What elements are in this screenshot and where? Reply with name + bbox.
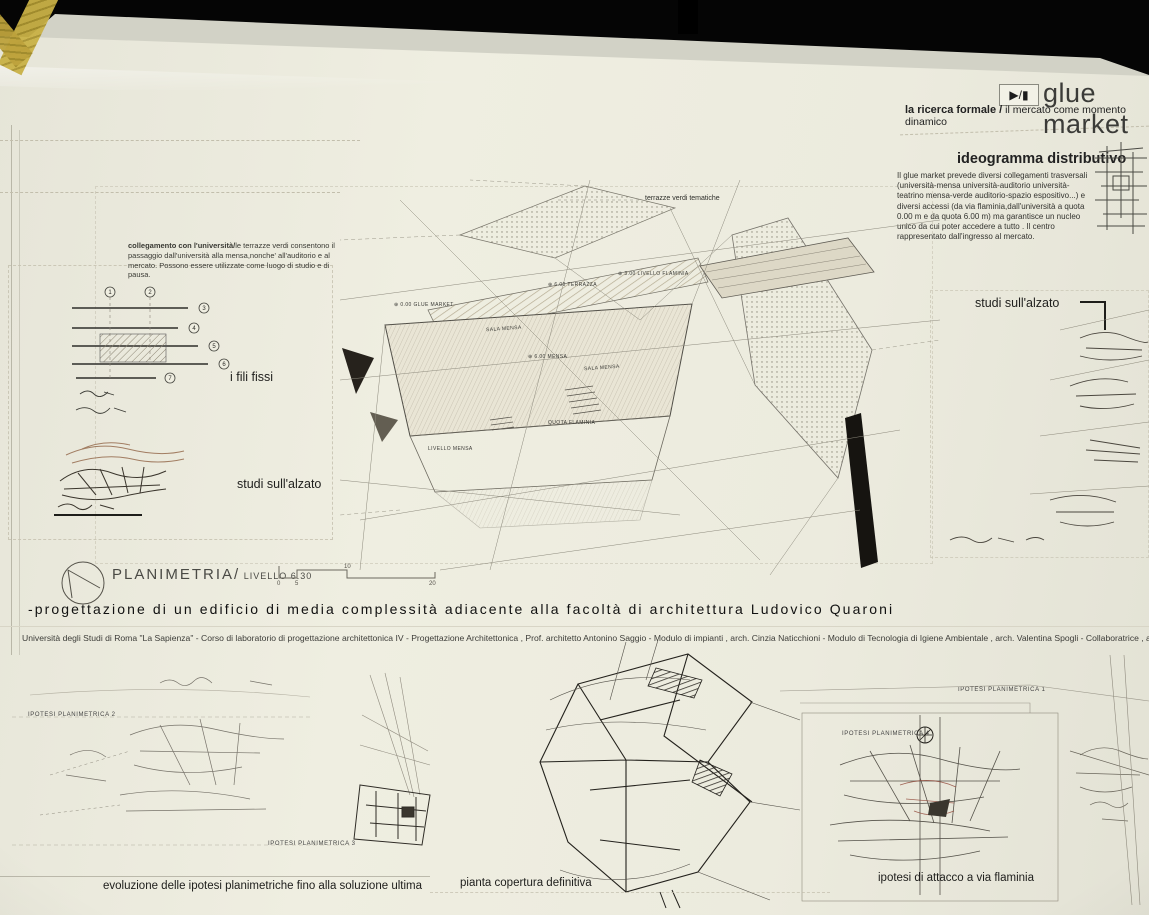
photo-backdrop: ▶/▮ glue market la ricerca formale / il …: [0, 0, 1149, 915]
planimetria-word: PLANIMETRIA/: [112, 566, 240, 583]
ipotesi-right-sketch: [780, 655, 1149, 905]
fili-fissi-label: i fili fissi: [230, 370, 273, 384]
scale-tick: 5: [295, 581, 299, 587]
caption-rule: [430, 892, 830, 893]
collegamento-note: collegamento con l'università/le terrazz…: [128, 241, 343, 280]
scale-tick: 0: [277, 581, 281, 587]
subtitle-lead: la ricerca formale /: [905, 104, 1002, 116]
plan-annotation: QUOTA FLAMINIA: [548, 420, 595, 426]
caption-evoluzione: evoluzione delle ipotesi planimetriche f…: [103, 880, 422, 892]
terrazze-verdi-label: terrazze verdi tematiche: [645, 195, 720, 202]
backdrop-gap: [678, 0, 698, 34]
scale-bar: 0 5 10 20: [275, 560, 440, 586]
pianta-copertura-sketch: [450, 640, 800, 908]
studi-alzato-left-label: studi sull'alzato: [237, 477, 321, 491]
construction-line: [0, 140, 360, 141]
central-plan-drawing: [340, 180, 940, 580]
plan-annotation: ⊕ 0.00 GLUE MARKET: [394, 302, 454, 308]
plan-annotation: LIVELLO MENSA: [428, 446, 473, 452]
caption-rule: [0, 876, 430, 877]
ideogramma-sketch: [1093, 138, 1149, 238]
poster-main-title: -progettazione di un edificio di media c…: [28, 601, 1148, 617]
title-divider: [0, 626, 1149, 627]
scale-tick: 10: [344, 564, 351, 570]
ipotesi-left-sketch: [10, 655, 440, 890]
alzato-right-sketch: [930, 290, 1149, 558]
plan-annotation: ⊕ 6.00 MENSA: [528, 354, 567, 360]
alzato-study-sketch: [52, 415, 227, 525]
project-subtitle: la ricerca formale / il mercato come mom…: [905, 104, 1141, 128]
plan-annotation: ⊕ 6.00 TERRAZZA: [548, 282, 597, 288]
note-lead: collegamento con l'università/: [128, 241, 235, 250]
caption-attacco: ipotesi di attacco a via flaminia: [878, 872, 1034, 884]
caption-pianta: pianta copertura definitiva: [460, 877, 592, 889]
fili-fissi-sketch: 1 2 3 4 5 6 7: [70, 282, 280, 427]
scale-tick: 20: [429, 581, 436, 587]
play-pause-icon: ▶/▮: [999, 84, 1039, 106]
plan-annotation: ⊕ 3.00 LIVELLO FLAMINIA: [618, 271, 689, 277]
poster-sheet: ▶/▮ glue market la ricerca formale / il …: [0, 0, 1149, 915]
